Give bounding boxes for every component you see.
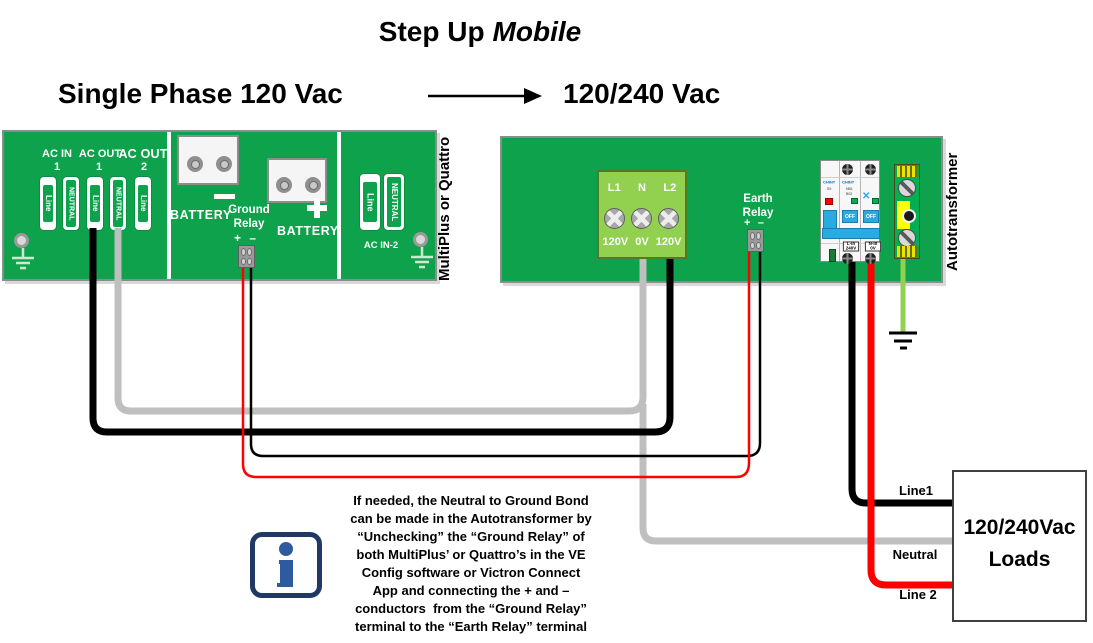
terminal-label: NEUTRAL — [113, 180, 123, 227]
battery-neg-terminal-block — [177, 135, 239, 185]
arrow-right-icon — [424, 84, 546, 108]
ac-out2-number: 2 — [116, 161, 172, 173]
chint-logo-icon: ✕ — [862, 192, 870, 202]
terminal-label: NEUTRAL — [66, 180, 76, 227]
breaker-terminal-label: N-in 0V — [865, 242, 881, 252]
terminal-ac-out1-neutral: NEUTRAL — [110, 177, 126, 230]
title-main: Step Up — [379, 16, 485, 47]
plus-sign: + — [744, 217, 750, 229]
terminal-ac-out1-line: Line — [87, 177, 103, 230]
line1-wire-label: Line1 — [886, 483, 946, 498]
plus-sign: + — [234, 231, 241, 245]
breaker-screw — [842, 164, 853, 175]
page-title: Step UpMobile — [330, 16, 630, 48]
line2-wire-label: Line 2 — [888, 587, 948, 602]
ground-busbar — [894, 164, 920, 259]
busbar-cap — [897, 246, 917, 257]
green-indicator — [872, 198, 879, 204]
terminal-label: Line — [90, 185, 100, 222]
n-voltage: 0V — [635, 236, 648, 248]
multiplus-board: AC IN 1 AC OUT 1 AC OUT 2 Line NEUTRAL L… — [2, 130, 437, 281]
breaker-bar — [822, 228, 880, 239]
l2-label: L2 — [663, 182, 676, 194]
note-text: If needed, the Neutral to Ground Bond ca… — [336, 492, 606, 636]
green-indicator — [851, 198, 858, 204]
ground-relay-terminal — [238, 245, 255, 268]
n-label: N — [638, 182, 646, 194]
battery-pos-terminal-block — [267, 158, 327, 203]
battery-nut — [305, 177, 321, 193]
board-divider — [337, 132, 341, 279]
busbar-dot — [902, 209, 916, 223]
ground-icon — [10, 248, 36, 274]
info-icon — [250, 532, 322, 598]
battery-nut — [187, 156, 203, 172]
source-voltage-label: Single Phase 120 Vac — [58, 78, 343, 110]
ground-icon — [409, 247, 435, 273]
circuit-breaker: CHINT S9 CHINT NB1 B02 ✕ OFF OFF L-in 24… — [820, 160, 880, 262]
breaker-toggle: OFF — [842, 210, 858, 223]
terminal-ac-out2-line: Line — [135, 177, 151, 230]
wire-line1-to-loads — [852, 256, 952, 503]
battery-nut — [216, 156, 232, 172]
diagram-canvas: Step UpMobile Single Phase 120 Vac 120/2… — [0, 0, 1093, 643]
terminal-label: Line — [43, 185, 53, 222]
l1-label: L1 — [608, 182, 621, 194]
breaker-divider — [860, 161, 861, 261]
battery-pos-label: BATTERY — [277, 224, 337, 238]
ground-relay-label-1: Ground — [219, 204, 279, 216]
breaker-bottom-terminal — [829, 249, 836, 262]
title-accent: Mobile — [493, 16, 582, 47]
loads-line1: 120/240Vac — [954, 512, 1085, 544]
busbar-screw — [898, 179, 916, 197]
battery-nut — [276, 177, 292, 193]
terminal-screw — [658, 208, 679, 229]
terminal-ac-in2-line: Line — [360, 174, 380, 230]
l1-voltage: 120V — [603, 236, 629, 248]
terminal-screw — [631, 208, 652, 229]
chassis-ground-stud — [413, 232, 428, 247]
battery-plus-sign — [307, 198, 327, 218]
loads-box: 120/240Vac Loads — [952, 470, 1087, 622]
breaker-screw — [865, 253, 876, 264]
breaker-model: B02 — [846, 193, 852, 197]
ac-out2-label: AC OUT — [115, 147, 171, 161]
input-terminal-block: L1 N L2 120V 0V 120V — [597, 170, 687, 259]
autotransformer-board: L1 N L2 120V 0V 120V Earth Relay + – — [500, 136, 943, 283]
wire-line2-to-loads — [871, 256, 952, 585]
ac-in2-label: AC IN-2 — [356, 240, 406, 251]
battery-minus-sign — [214, 194, 235, 199]
breaker-screw — [842, 253, 853, 264]
wire-neutral-to-loads — [643, 404, 952, 541]
ground-relay-label-2: Relay — [219, 218, 279, 230]
target-voltage-label: 120/240 Vac — [563, 78, 720, 110]
ground-relay-polarity: + – — [234, 231, 256, 245]
terminal-label: Line — [363, 182, 377, 222]
busbar-screw — [898, 229, 916, 247]
terminal-screw — [604, 208, 625, 229]
l2-voltage: 120V — [656, 236, 682, 248]
chassis-ground-stud — [14, 233, 29, 248]
loads-line2: Loads — [954, 544, 1085, 576]
neutral-wire-label: Neutral — [885, 547, 945, 562]
terminal-label: Line — [138, 185, 148, 222]
minus-sign: – — [758, 217, 764, 229]
breaker-toggle: OFF — [863, 210, 879, 223]
earth-relay-terminal — [747, 229, 764, 252]
terminal-label: NEUTRAL — [387, 177, 401, 227]
breaker-model: NB1 — [846, 188, 853, 192]
breaker-brand: CHINT — [842, 181, 854, 185]
earth-relay-polarity: + – — [744, 217, 764, 229]
breaker-model: S9 — [827, 188, 831, 192]
terminal-ac-in-line: Line — [40, 177, 56, 230]
busbar-cap — [897, 166, 917, 177]
breaker-divider — [839, 161, 840, 261]
autotransformer-side-label: Autotransformer — [944, 146, 961, 278]
earth-ground-icon — [889, 333, 917, 348]
breaker-screw — [865, 164, 876, 175]
breaker-brand: CHINT — [823, 181, 835, 185]
info-i-glyph — [266, 541, 306, 589]
earth-relay-label-1: Earth — [733, 193, 783, 205]
terminal-ac-in-neutral: NEUTRAL — [63, 177, 79, 230]
multiplus-side-label: MultiPlus or Quattro — [436, 134, 453, 284]
breaker-terminal-label: L-in 240V — [843, 242, 859, 252]
red-indicator — [825, 198, 833, 205]
minus-sign: – — [249, 231, 256, 245]
terminal-ac-in2-neutral: NEUTRAL — [384, 174, 404, 230]
wire-relay-plus — [243, 249, 749, 477]
